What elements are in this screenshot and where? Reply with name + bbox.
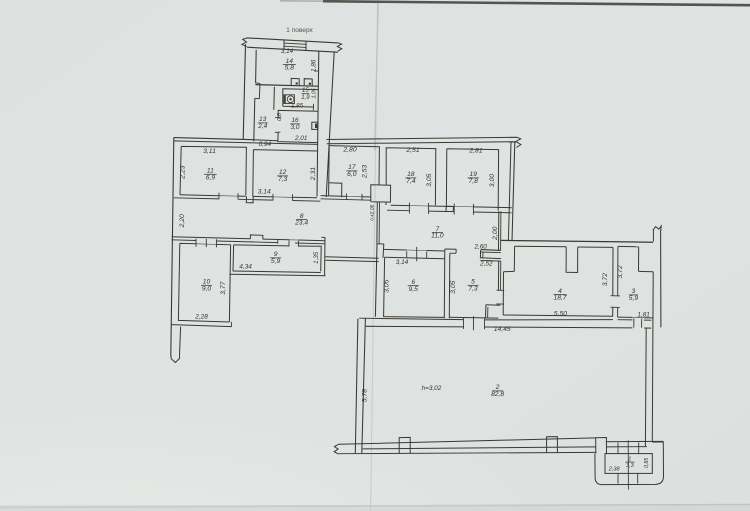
svg-text:0,8: 0,8 xyxy=(277,112,283,121)
svg-text:7,4: 7,4 xyxy=(406,178,416,185)
svg-text:82,8: 82,8 xyxy=(491,391,504,398)
svg-text:2,80: 2,80 xyxy=(342,147,356,154)
svg-text:5,8: 5,8 xyxy=(285,65,295,72)
svg-text:2,4: 2,4 xyxy=(257,123,267,130)
svg-text:23,4: 23,4 xyxy=(294,220,308,227)
svg-text:15: 15 xyxy=(302,88,309,94)
svg-text:7,3: 7,3 xyxy=(468,285,478,292)
svg-text:1,35: 1,35 xyxy=(313,251,320,264)
svg-text:1 поверх: 1 поверх xyxy=(286,27,313,34)
svg-text:h=3,02: h=3,02 xyxy=(422,385,442,392)
svg-text:3,05: 3,05 xyxy=(450,280,457,293)
svg-text:2,81: 2,81 xyxy=(468,148,482,155)
svg-text:0,4: 0,4 xyxy=(370,214,375,221)
svg-text:5,9: 5,9 xyxy=(271,258,281,265)
svg-text:18,7: 18,7 xyxy=(553,295,566,302)
svg-text:3,77: 3,77 xyxy=(220,281,227,294)
svg-text:2,51: 2,51 xyxy=(405,147,419,154)
svg-text:3,14: 3,14 xyxy=(396,259,409,266)
svg-text:11,0: 11,0 xyxy=(431,233,444,240)
svg-text:1,85: 1,85 xyxy=(291,103,304,110)
svg-text:2,31: 2,31 xyxy=(310,167,317,181)
svg-text:2,53: 2,53 xyxy=(362,165,369,179)
svg-text:3,14: 3,14 xyxy=(281,48,294,55)
svg-text:5,9: 5,9 xyxy=(629,295,639,302)
svg-text:1,81: 1,81 xyxy=(637,311,650,318)
svg-text:2,01: 2,01 xyxy=(294,135,308,142)
svg-text:3,72: 3,72 xyxy=(602,273,609,286)
svg-text:2,52: 2,52 xyxy=(479,261,493,268)
svg-text:5,78: 5,78 xyxy=(361,389,368,402)
svg-text:3,00: 3,00 xyxy=(489,174,496,187)
svg-text:3,3: 3,3 xyxy=(626,463,635,469)
svg-text:1,86: 1,86 xyxy=(310,59,317,72)
svg-text:1: 1 xyxy=(628,456,631,462)
svg-text:3,11: 3,11 xyxy=(203,148,216,155)
svg-text:7,8: 7,8 xyxy=(469,178,479,185)
svg-text:3,14: 3,14 xyxy=(258,189,271,196)
svg-text:3,72: 3,72 xyxy=(617,265,624,278)
svg-text:6,0: 6,0 xyxy=(347,171,357,178)
svg-text:2,60: 2,60 xyxy=(473,244,487,251)
svg-text:2,23: 2,23 xyxy=(180,165,187,179)
svg-text:2,38: 2,38 xyxy=(608,466,621,472)
svg-text:6,9: 6,9 xyxy=(206,174,216,181)
svg-text:4,34: 4,34 xyxy=(239,263,252,270)
svg-text:9,0: 9,0 xyxy=(202,285,212,292)
svg-text:0,94: 0,94 xyxy=(259,141,272,148)
svg-text:2,20: 2,20 xyxy=(179,214,186,228)
svg-text:7,3: 7,3 xyxy=(278,176,288,183)
svg-text:0,85: 0,85 xyxy=(644,458,650,468)
svg-text:3,0: 3,0 xyxy=(291,124,300,131)
svg-text:1,05: 1,05 xyxy=(312,88,318,98)
svg-text:2,00: 2,00 xyxy=(492,226,499,240)
svg-text:2,06: 2,06 xyxy=(370,205,376,216)
svg-text:3,05: 3,05 xyxy=(426,173,433,186)
svg-text:3,05: 3,05 xyxy=(384,279,391,292)
svg-text:2,28: 2,28 xyxy=(194,314,208,321)
svg-text:1,9: 1,9 xyxy=(301,95,310,101)
svg-text:5,50: 5,50 xyxy=(554,311,567,318)
svg-text:14,45: 14,45 xyxy=(494,326,511,333)
svg-text:9,5: 9,5 xyxy=(409,286,419,293)
